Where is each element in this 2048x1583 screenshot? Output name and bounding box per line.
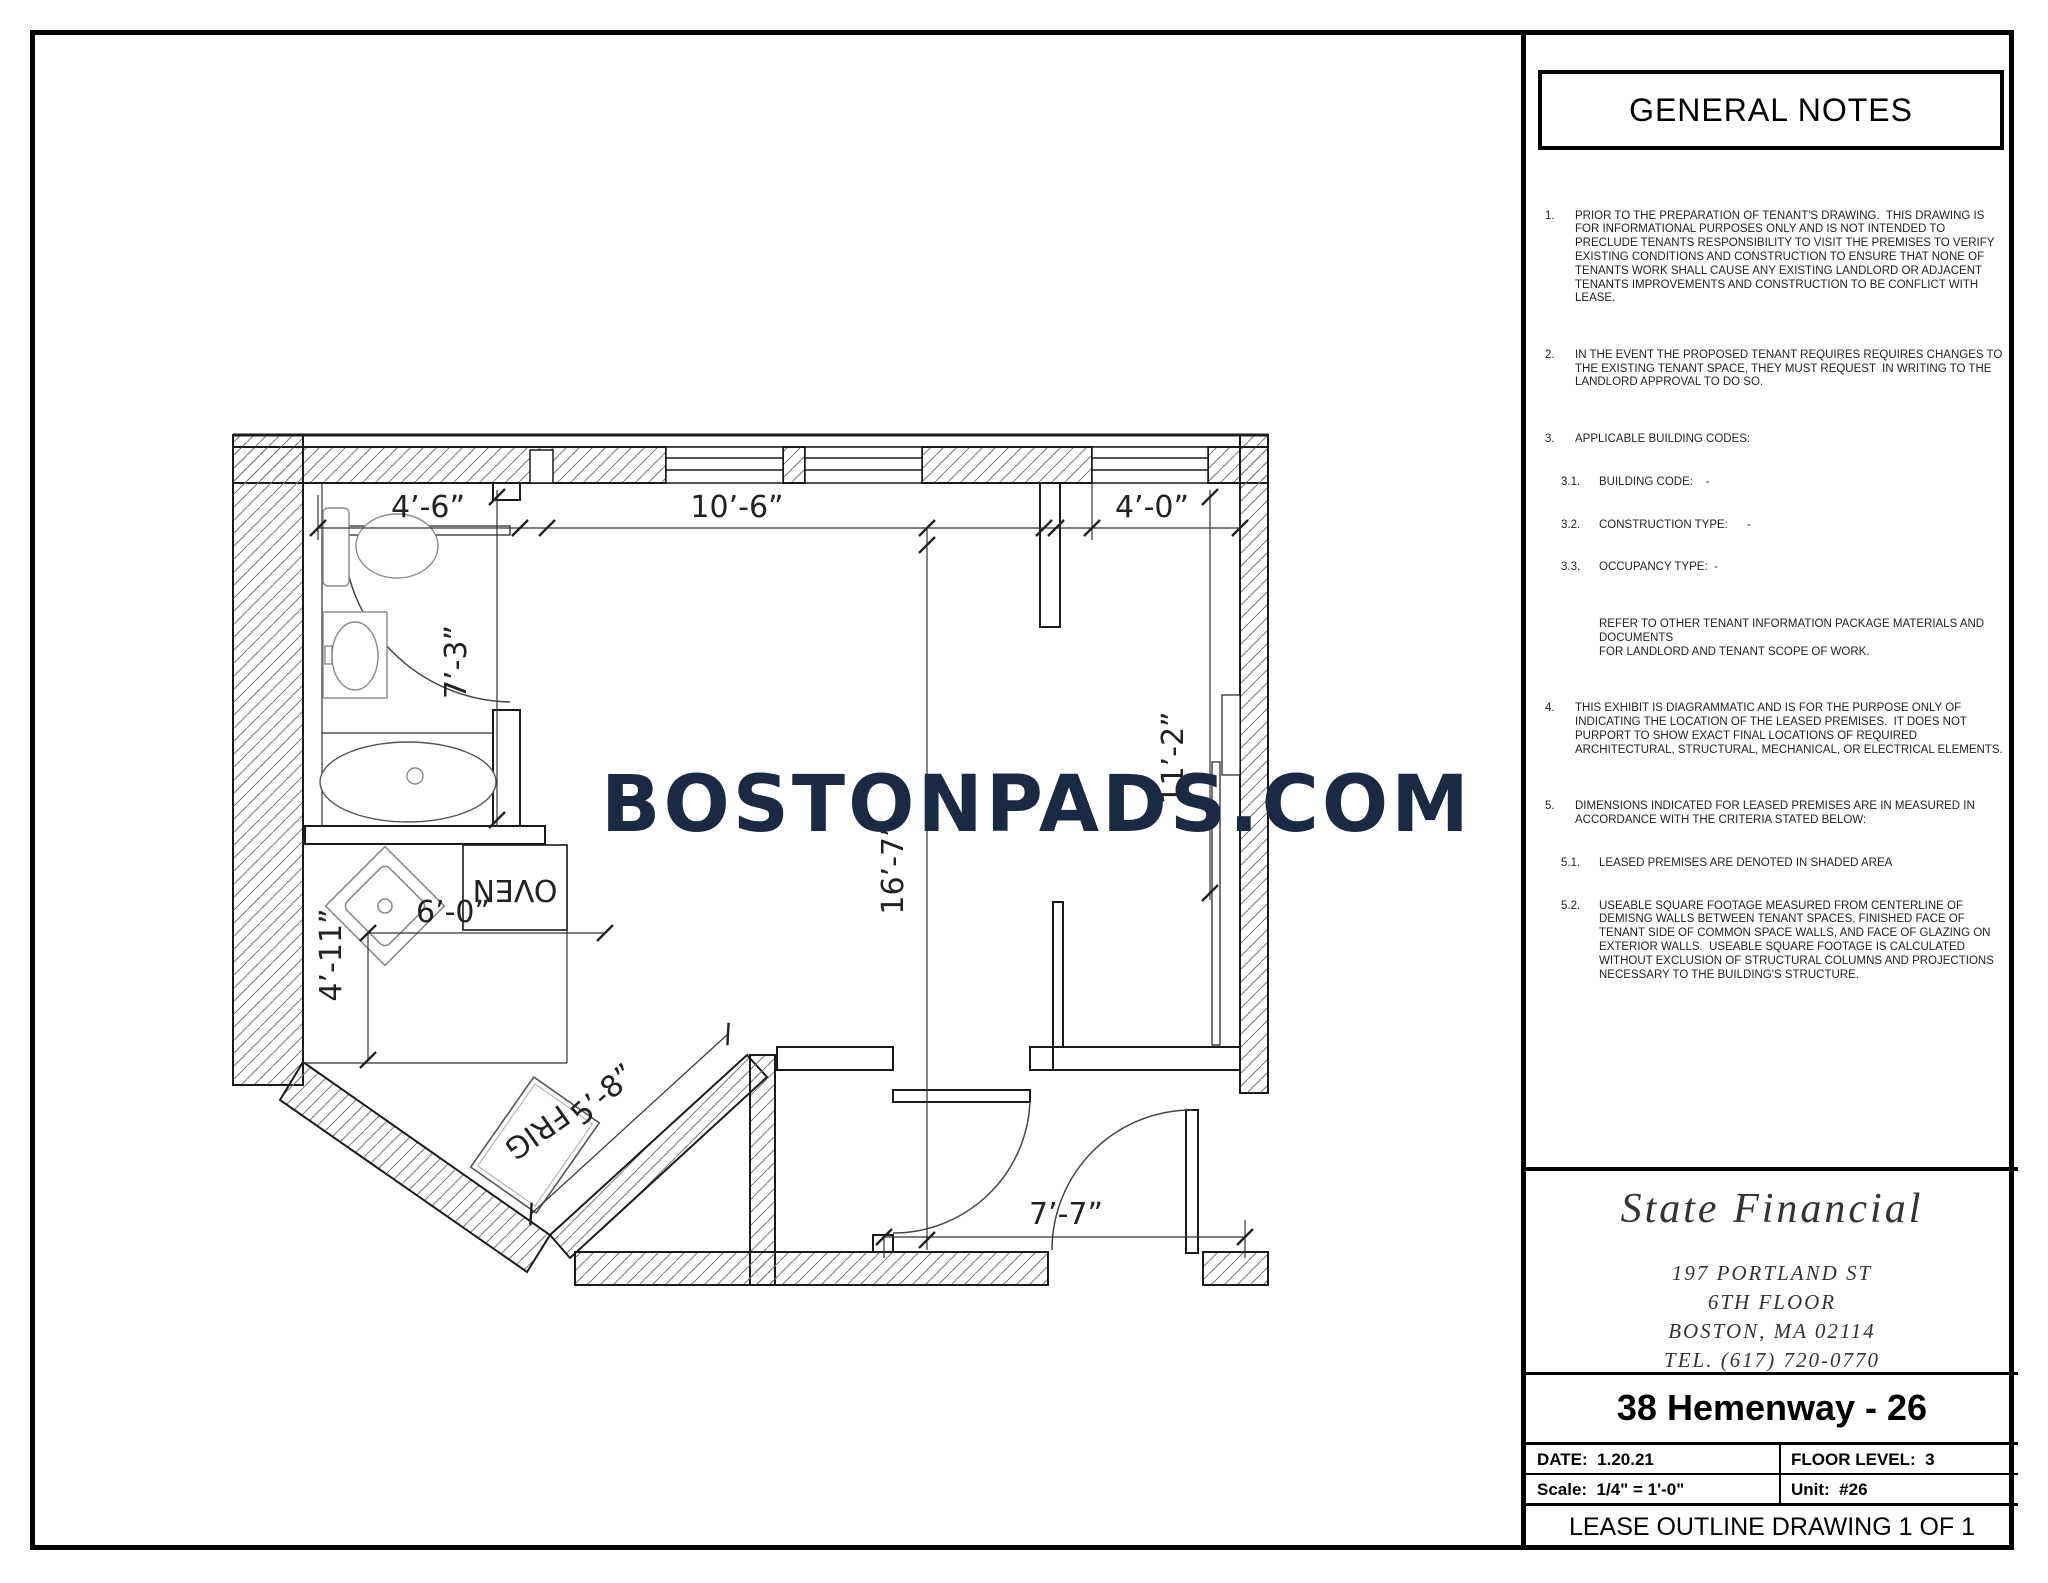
unit-label: Unit: xyxy=(1791,1480,1830,1499)
t-stub-wall xyxy=(1040,483,1060,627)
vestibule-door-leaf xyxy=(893,1090,1030,1102)
window xyxy=(1092,447,1208,483)
door-niche xyxy=(530,450,553,483)
grid-col-separator xyxy=(1779,1444,1781,1503)
note-item-5-2: 5.2. USEABLE SQUARE FOOTAGE MEASURED FRO… xyxy=(1545,900,2003,983)
grid-row-separator xyxy=(1524,1473,2018,1475)
dim-kitchen-height: 4’-11” xyxy=(314,908,349,1001)
sink-basin xyxy=(332,622,378,690)
note-item-5: 5. DIMENSIONS INDICATED FOR LEASED PREMI… xyxy=(1545,800,2003,828)
note-item-3-1: 3.1. BUILDING CODE: - xyxy=(1545,476,2003,490)
note-text: CONSTRUCTION TYPE: - xyxy=(1599,519,2003,533)
note-item-2: 2. IN THE EVENT THE PROPOSED TENANT REQU… xyxy=(1545,349,2003,390)
dimension-ticks xyxy=(310,489,1253,1248)
general-notes-header: GENERAL NOTES xyxy=(1538,70,2004,150)
firm-block: State Financial 197 PORTLAND ST 6TH FLOO… xyxy=(1526,1185,2018,1375)
unit-cell: Unit: #26 xyxy=(1791,1480,1868,1500)
bostonpads-watermark: BOSTONPADS.COM xyxy=(601,760,1472,850)
l-wall-vertical xyxy=(1053,902,1063,1070)
note-item-3-2: 3.2. CONSTRUCTION TYPE: - xyxy=(1545,519,2003,533)
bathtub xyxy=(320,742,496,822)
toilet-tank xyxy=(323,508,349,586)
date-value: 1.20.21 xyxy=(1597,1450,1654,1469)
floor-level-label: FLOOR LEVEL: xyxy=(1791,1450,1916,1469)
project-title-row: 38 Hemenway - 26 xyxy=(1526,1372,2018,1444)
sink-faucet xyxy=(325,646,332,664)
firm-name: State Financial xyxy=(1526,1185,2018,1233)
note-num: 5.1. xyxy=(1561,857,1599,871)
general-notes-title: GENERAL NOTES xyxy=(1629,92,1913,129)
note-num: 3.1. xyxy=(1561,476,1599,490)
date-cell: DATE: 1.20.21 xyxy=(1537,1450,1654,1470)
general-notes-list: 1. PRIOR TO THE PREPARATION OF TENANT'S … xyxy=(1545,182,2003,997)
note-text: IN THE EVENT THE PROPOSED TENANT REQUIRE… xyxy=(1575,349,2003,390)
note-item-3-3: 3.3. OCCUPANCY TYPE: - xyxy=(1545,561,2003,575)
note-num: 1. xyxy=(1545,210,1575,307)
note-text: BUILDING CODE: - xyxy=(1599,476,2003,490)
firm-tel: TEL. (617) 720-0770 xyxy=(1526,1346,2018,1375)
dimension-lines xyxy=(318,483,1245,1258)
note-num: 3.2. xyxy=(1561,519,1599,533)
note-item-5-1: 5.1. LEASED PREMISES ARE DENOTED IN SHAD… xyxy=(1545,857,2003,871)
note-item-4: 4. THIS EXHIBIT IS DIAGRAMMATIC AND IS F… xyxy=(1545,702,2003,757)
note-text: DIMENSIONS INDICATED FOR LEASED PREMISES… xyxy=(1575,800,2003,828)
lease-outline-sheet: { "watermark": "BOSTONPADS.COM", "plan":… xyxy=(0,0,2048,1583)
top-wall-lines xyxy=(233,435,1268,447)
note-item-3: 3. APPLICABLE BUILDING CODES: xyxy=(1545,433,2003,447)
floor-level-cell: FLOOR LEVEL: 3 xyxy=(1791,1450,1935,1470)
dim-entry: 7’-7” xyxy=(1029,1197,1103,1232)
note-refer: REFER TO OTHER TENANT INFORMATION PACKAG… xyxy=(1545,618,2003,659)
note-num: 2. xyxy=(1545,349,1575,390)
note-text: LEASED PREMISES ARE DENOTED IN SHADED AR… xyxy=(1599,857,2003,871)
window xyxy=(666,447,783,483)
note-text: APPLICABLE BUILDING CODES: xyxy=(1575,433,2003,447)
note-text: OCCUPANCY TYPE: - xyxy=(1599,561,2003,575)
dim-top-mid: 10’-6” xyxy=(690,490,783,525)
dim-top-left: 4’-6” xyxy=(391,490,465,525)
notes-firm-separator xyxy=(1524,1167,2018,1171)
note-num: 3.3. xyxy=(1561,561,1599,575)
note-item-1: 1. PRIOR TO THE PREPARATION OF TENANT'S … xyxy=(1545,210,2003,307)
vestibule-door-arc xyxy=(893,1102,1030,1233)
note-num: 5.2. xyxy=(1561,900,1599,983)
scale-label: Scale: xyxy=(1537,1480,1587,1499)
dim-bath-height: 7’-3” xyxy=(439,625,474,699)
note-num: 4. xyxy=(1545,702,1575,757)
l-wall-horizontal xyxy=(1053,1047,1240,1070)
note-num: 3. xyxy=(1545,433,1575,447)
tub-drain xyxy=(407,768,423,784)
project-title: 38 Hemenway - 26 xyxy=(1617,1387,1927,1429)
firm-address-line3: BOSTON, MA 02114 xyxy=(1526,1317,2018,1346)
label-oven: OVEN xyxy=(472,872,557,907)
sheet-title: LEASE OUTLINE DRAWING 1 OF 1 xyxy=(1569,1513,1975,1542)
scale-cell: Scale: 1/4" = 1'-0" xyxy=(1537,1480,1684,1500)
floor-level-value: 3 xyxy=(1925,1450,1934,1469)
firm-address-line1: 197 PORTLAND ST xyxy=(1526,1259,2018,1288)
scale-value: 1/4" = 1'-0" xyxy=(1597,1480,1685,1499)
note-text: USEABLE SQUARE FOOTAGE MEASURED FROM CEN… xyxy=(1599,900,2003,983)
unit-value: #26 xyxy=(1839,1480,1867,1499)
dim-top-right: 4’-0” xyxy=(1115,490,1189,525)
note-num: 5. xyxy=(1545,800,1575,828)
window xyxy=(805,447,922,483)
note-text: THIS EXHIBIT IS DIAGRAMMATIC AND IS FOR … xyxy=(1575,702,2003,757)
note-text: PRIOR TO THE PREPARATION OF TENANT'S DRA… xyxy=(1575,210,2003,307)
firm-address-line2: 6TH FLOOR xyxy=(1526,1288,2018,1317)
date-label: DATE: xyxy=(1537,1450,1588,1469)
entry-door-leaf xyxy=(1186,1110,1198,1253)
sheet-title-row: LEASE OUTLINE DRAWING 1 OF 1 xyxy=(1526,1505,2018,1550)
